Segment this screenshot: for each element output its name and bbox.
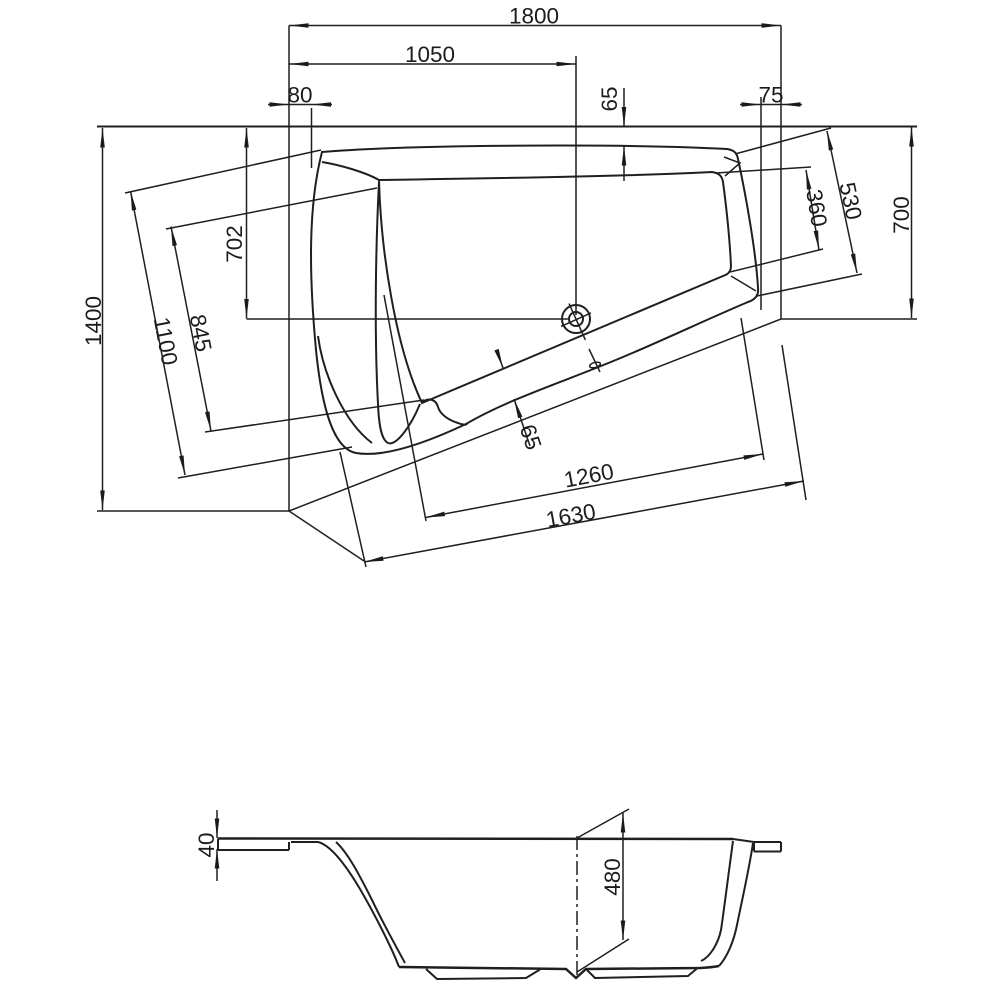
svg-text:75: 75 xyxy=(758,83,783,108)
svg-text:845: 845 xyxy=(185,312,217,354)
svg-text:40: 40 xyxy=(194,832,219,857)
svg-text:530: 530 xyxy=(834,180,866,222)
svg-text:1100: 1100 xyxy=(149,315,183,367)
svg-text:65: 65 xyxy=(515,421,547,453)
svg-text:1630: 1630 xyxy=(544,499,598,533)
svg-text:1400: 1400 xyxy=(81,296,106,346)
svg-text:700: 700 xyxy=(889,196,914,234)
svg-text:480: 480 xyxy=(600,858,625,896)
svg-text:702: 702 xyxy=(222,225,247,263)
svg-text:80: 80 xyxy=(287,83,312,108)
svg-text:1800: 1800 xyxy=(509,4,559,29)
svg-text:1050: 1050 xyxy=(405,42,455,67)
svg-text:65: 65 xyxy=(597,86,622,111)
svg-text:360: 360 xyxy=(801,188,832,229)
svg-text:1260: 1260 xyxy=(562,459,616,493)
